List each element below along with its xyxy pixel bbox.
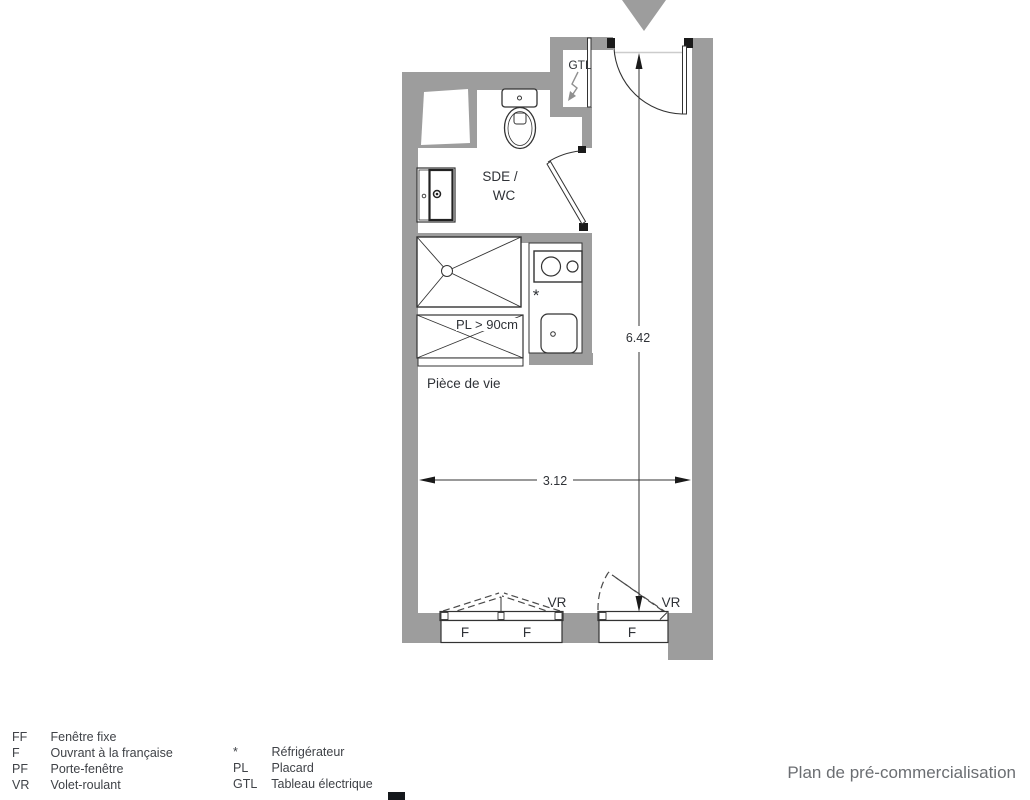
- legend-key-ff: FF: [12, 730, 47, 744]
- floor-plan-drawing: GTL SDE / WC: [0, 0, 1030, 800]
- dim-v-arrow-down: [636, 596, 643, 612]
- legend-label-pf: Porte-fenêtre: [50, 762, 123, 776]
- legend-key-gtl: GTL: [233, 777, 268, 791]
- placard: PL > 90cm: [417, 315, 523, 366]
- gtl-label: GTL: [568, 58, 592, 72]
- bathroom-label-line1: SDE /: [482, 169, 518, 184]
- wall-left: [402, 72, 418, 613]
- legend-label-vr: Volet-roulant: [50, 778, 120, 792]
- shower-drain: [442, 266, 453, 277]
- window-right-frame-end-left: [599, 613, 606, 620]
- entrance-door: [607, 38, 693, 114]
- legend-label-f: Ouvrant à la française: [50, 746, 172, 760]
- window-right-f-label: F: [628, 625, 636, 640]
- cropped-corner-mark: [388, 792, 405, 800]
- bathroom-door-leaf: [547, 162, 586, 225]
- entrance-marker-triangle: [622, 0, 666, 31]
- wall-right: [692, 38, 713, 660]
- wall-kitchen-right: [582, 243, 592, 355]
- page-title: Plan de pré-commercialisation: [787, 763, 1016, 783]
- shower-outline: [417, 237, 521, 307]
- dim-v-arrow-up: [636, 53, 643, 69]
- window-right-vr-label: VR: [662, 595, 681, 610]
- legend-key-pl: PL: [233, 761, 268, 775]
- window-left-frame-end-right: [555, 613, 562, 620]
- legend-row-pf: PF Porte-fenêtre: [12, 762, 123, 776]
- gtl-partition-line: [588, 38, 592, 107]
- entrance-jamb-left: [607, 38, 615, 48]
- toilet: [502, 89, 537, 149]
- legend-label-fridge: Réfrigérateur: [271, 745, 344, 759]
- dim-vertical-value: 6.42: [626, 331, 650, 345]
- legend-row-vr: VR Volet-roulant: [12, 778, 121, 792]
- dim-h-arrow-left: [419, 477, 435, 484]
- bathroom-door-jamb-top: [578, 146, 586, 153]
- wall-bottom-right-corner: [668, 613, 713, 660]
- vanity-unit: [417, 168, 455, 222]
- duct-niche-panel: [421, 89, 470, 145]
- window-left-frame-end-left: [441, 613, 448, 620]
- bathroom-label-line2: WC: [493, 188, 516, 203]
- wall-gtl-left: [550, 50, 563, 117]
- wall-bathroom-top: [402, 72, 553, 90]
- entrance-door-leaf: [683, 46, 687, 114]
- bathroom-door: [547, 146, 588, 231]
- legend-row-fridge: * Réfrigérateur: [233, 745, 344, 759]
- vanity-right-knob-dot: [436, 193, 439, 196]
- living-room-label: Pièce de vie: [427, 376, 501, 391]
- window-left-f1-label: F: [461, 625, 469, 640]
- entrance-door-swing-arc: [614, 48, 682, 114]
- dim-h-arrow-right: [675, 477, 691, 484]
- bathroom-door-swing-arc: [548, 151, 580, 162]
- wall-gtl-top: [550, 37, 613, 50]
- window-left-f2-label: F: [523, 625, 531, 640]
- legend-row-pl: PL Placard: [233, 761, 314, 775]
- window-right-frame: [598, 612, 668, 621]
- legend-key-f: F: [12, 746, 47, 760]
- legend-key-pf: PF: [12, 762, 47, 776]
- vanity-left-knob: [422, 194, 426, 198]
- legend-key-fridge: *: [233, 745, 268, 759]
- wall-kitchen-bottom: [529, 353, 593, 365]
- placard-plinth: [418, 358, 523, 366]
- wall-gtl-bottom: [550, 107, 592, 117]
- kitchenette: *: [529, 243, 582, 353]
- legend-label-gtl: Tableau électrique: [271, 777, 372, 791]
- bathroom-door-jamb-bottom: [579, 223, 588, 231]
- toilet-tank-button: [518, 96, 522, 100]
- floor-plan-page: GTL SDE / WC: [0, 0, 1030, 800]
- placard-label: PL > 90cm: [456, 317, 518, 332]
- toilet-seat-detail: [514, 113, 526, 124]
- legend-label-pl: Placard: [271, 761, 313, 775]
- legend-label-ff: Fenêtre fixe: [50, 730, 116, 744]
- window-right-opening-dashes: [598, 572, 667, 613]
- dim-horizontal-value: 3.12: [543, 474, 567, 488]
- window-left-box: [441, 621, 562, 643]
- window-left: F F VR: [440, 593, 567, 643]
- legend-row-f: F Ouvrant à la française: [12, 746, 173, 760]
- window-left-frame-middle: [498, 613, 504, 620]
- fridge-star-mark: *: [533, 286, 540, 305]
- legend-row-gtl: GTL Tableau électrique: [233, 777, 373, 791]
- window-left-vr-label: VR: [548, 595, 567, 610]
- legend-key-vr: VR: [12, 778, 47, 792]
- shower-tray: [417, 237, 521, 307]
- legend-row-ff: FF Fenêtre fixe: [12, 730, 117, 744]
- kitchen-sink: [541, 314, 577, 353]
- wall-stub-bath-door: [582, 117, 592, 148]
